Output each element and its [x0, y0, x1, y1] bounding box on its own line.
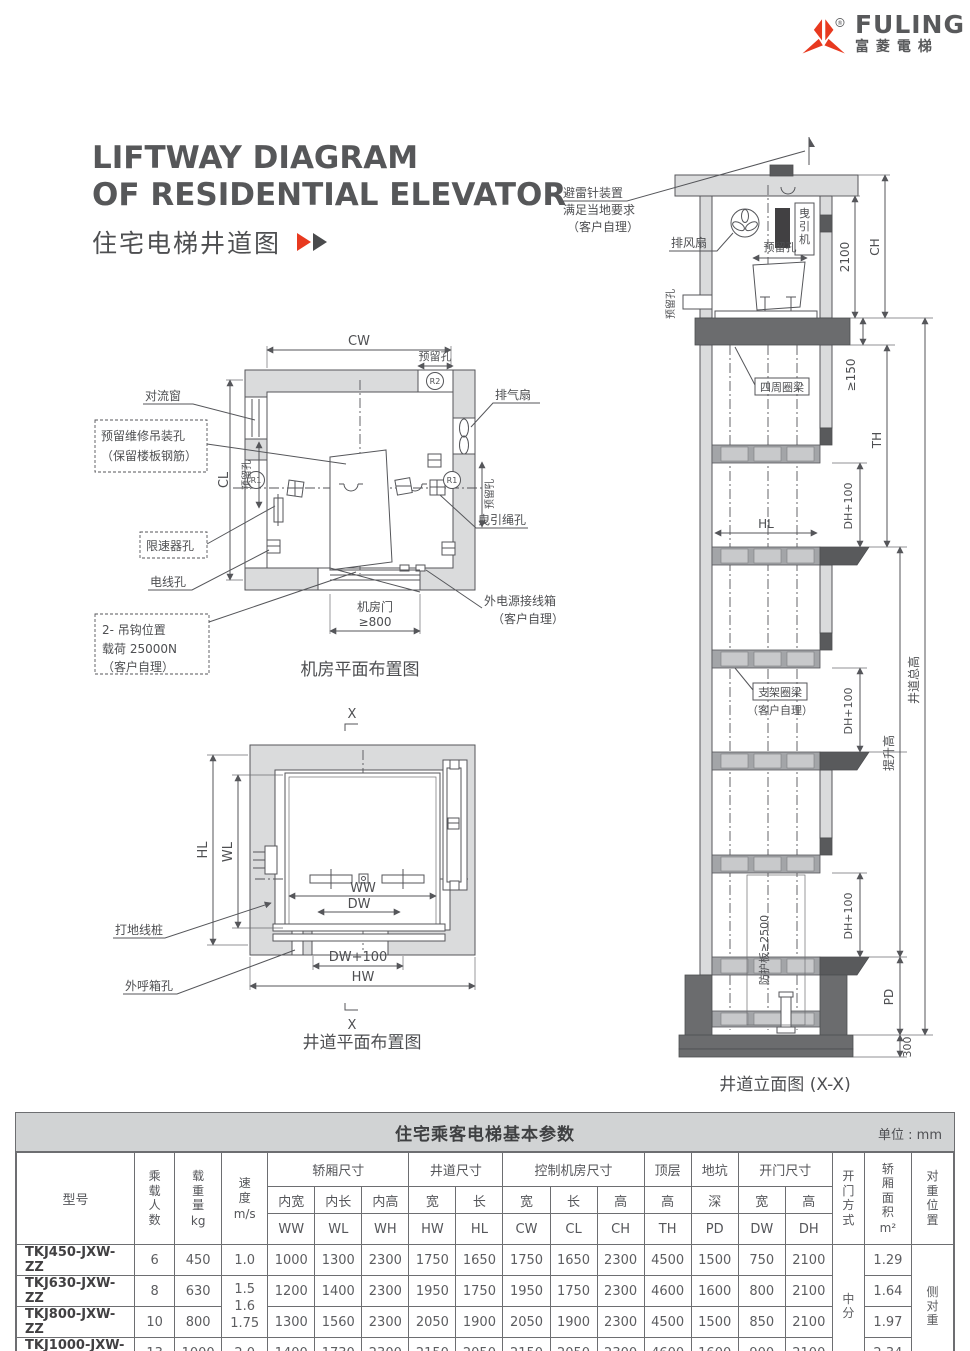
table-title-bar: 住宅乘客电梯基本参数 单位 : mm: [16, 1113, 954, 1152]
sub-hw: 宽: [409, 1187, 456, 1214]
label-rope-hole: 曳引绳孔: [478, 513, 526, 527]
dim-cl: CL: [217, 471, 232, 488]
code-wh: WH: [362, 1214, 409, 1245]
dim-300: 300: [901, 1037, 914, 1058]
cell-cwt-position: 侧对重: [911, 1245, 953, 1351]
arrow-icon: [313, 233, 327, 251]
dim-2100: 2100: [838, 242, 852, 273]
page-title: LIFTWAY DIAGRAM OF RESIDENTIAL ELEVATOR …: [92, 140, 572, 260]
pit-floor: [679, 1035, 853, 1049]
cell-model: TKJ450-JXW-ZZ: [17, 1245, 135, 1276]
machine-room-right-wall: [820, 196, 832, 318]
label-lightning-3: （客户自理）: [567, 219, 639, 234]
group-car-size: 轿厢尺寸: [268, 1153, 409, 1187]
label-ring-beam: 四周圈梁: [760, 380, 804, 394]
dim-th: TH: [870, 432, 884, 449]
section-mark-x-top: X: [348, 707, 357, 722]
sill-bar: [273, 924, 445, 931]
label-convection-window: 对流窗: [145, 389, 181, 403]
label-machine-room-door: 机房门: [357, 599, 393, 614]
dim-hl: HL: [758, 517, 774, 531]
code-hw: HW: [409, 1214, 456, 1245]
dim-dw: DW: [348, 897, 371, 912]
bedplate: [753, 262, 805, 310]
label-guard-plate: 防护板≥2500: [757, 915, 771, 985]
dim-min150: ≥150: [844, 359, 858, 392]
guard-plate-outline: [747, 875, 805, 1025]
sub-wl: 内长: [315, 1187, 362, 1214]
col-car-area: 轿厢面积m²: [864, 1153, 911, 1245]
sub-dh: 高: [785, 1187, 832, 1214]
door-lintel: [820, 633, 832, 650]
group-door-size: 开门尺寸: [738, 1153, 832, 1187]
traction-machine-outline: [330, 450, 392, 570]
dim-door: ≥800: [359, 615, 392, 629]
pit-left-wall: [685, 975, 712, 1037]
label-lightning-1: 避雷针装置: [563, 185, 623, 200]
dim-dw100: DW+100: [329, 950, 388, 965]
table-row: TKJ630-JXW-ZZ 8 630 1.51.61.75 1200 1400…: [17, 1276, 954, 1307]
hoist-hole-note-box: [95, 420, 207, 472]
brand-name: FULING: [855, 12, 965, 38]
page: ® FULING 富菱電梯 LIFTWAY DIAGRAM OF RESIDEN…: [0, 0, 970, 1351]
label-vent-fan: 排风扇: [671, 235, 707, 250]
roof-slab: [675, 175, 858, 196]
machine-floor-slab: [695, 318, 850, 345]
label-governor-hole: 限速器孔: [146, 539, 194, 553]
pit-floor-lip: [679, 1049, 853, 1057]
sub-ww: 内宽: [268, 1187, 315, 1214]
spec-table: 型号 乘载人数 载重量kg 速度m/s 轿厢尺寸 井道尺寸 控制机房尺寸 顶层 …: [16, 1152, 954, 1351]
dim-cw: CW: [348, 334, 370, 349]
liftway-plan-caption: 井道平面布置图: [303, 1033, 422, 1053]
dim-dh2: DH+100: [842, 688, 855, 735]
door-lintel: [820, 428, 832, 445]
sub-pd: 深: [691, 1187, 738, 1214]
col-speed: 速度m/s: [222, 1153, 268, 1245]
table-title: 住宅乘客电梯基本参数: [395, 1120, 575, 1145]
label-hoist-hole-2: （保留楼板钢筋）: [101, 448, 197, 463]
code-dh: DH: [785, 1214, 832, 1245]
vent-fan-icon: [731, 209, 759, 237]
sub-ch: 高: [597, 1187, 644, 1214]
dim-hl: HL: [196, 841, 211, 859]
dim-dh3: DH+100: [842, 893, 855, 940]
elevation-caption: 井道立面图 (X-X): [719, 1075, 850, 1095]
label-hook-1: 2- 吊钩位置: [102, 622, 166, 637]
cell-model: TKJ800-JXW-ZZ: [17, 1307, 135, 1338]
door-unit: [443, 760, 467, 890]
cell-door-type: 中分: [832, 1245, 864, 1351]
label-reserved-hole-top: 预留孔: [764, 241, 797, 254]
dim-ww: WW: [350, 881, 376, 896]
code-cw: CW: [503, 1214, 550, 1245]
shaft-right-wall: [820, 345, 832, 428]
dim-dh1: DH+100: [842, 483, 855, 530]
machine-room-plan-caption: 机房平面布置图: [301, 660, 420, 680]
table-row: TKJ1000-JXW-ZZ 13 1000 2.0 1400 1730 230…: [17, 1338, 954, 1351]
title-line1: LIFTWAY DIAGRAM: [92, 140, 572, 177]
parameter-table: 住宅乘客电梯基本参数 单位 : mm 型号 乘载人数 载重量kg 速度m/s 轿…: [15, 1112, 955, 1351]
fuling-logo-icon: ®: [800, 12, 849, 64]
group-top-floor: 顶层: [644, 1153, 691, 1187]
sub-cl: 长: [550, 1187, 597, 1214]
roof-cap-block: [770, 165, 793, 176]
group-shaft-size: 井道尺寸: [409, 1153, 503, 1187]
label-wire-hole: 电线孔: [150, 575, 186, 589]
cell-model: TKJ630-JXW-ZZ: [17, 1276, 135, 1307]
dim-hw: HW: [352, 970, 375, 985]
label-bracket-beam-1: 支架圈梁: [758, 685, 802, 699]
label-ground-stake: 打地线桩: [115, 922, 163, 937]
registered-mark: ®: [837, 20, 843, 27]
label-power-box-1: 外电源接线箱: [484, 593, 556, 608]
code-hl: HL: [456, 1214, 503, 1245]
table-row: TKJ450-JXW-ZZ 6 450 1.0 1000 1300 2300 1…: [17, 1245, 954, 1276]
liftway-plan: X X HL: [95, 698, 575, 1068]
code-th: TH: [644, 1214, 691, 1245]
title-subtitle: 住宅电梯井道图: [92, 224, 281, 260]
dim-total-height: 井道总高: [906, 656, 921, 704]
shaft-left-wall: [700, 345, 712, 975]
label-bracket-beam-2: （客户自理）: [747, 703, 813, 717]
group-pit: 地坑: [691, 1153, 738, 1187]
sub-th: 高: [644, 1187, 691, 1214]
table-unit: 单位 : mm: [878, 1124, 942, 1143]
col-model: 型号: [17, 1153, 135, 1245]
label-call-box-hole: 外呼箱孔: [125, 978, 173, 993]
label-power-box-2: （客户自理）: [492, 611, 564, 626]
label-reserved-hole-right: 预留孔: [483, 479, 496, 509]
label-hook-2: 载荷 25000N: [102, 642, 177, 656]
door-lintel: [820, 838, 832, 855]
sub-cw: 宽: [503, 1187, 550, 1214]
sub-wh: 内高: [362, 1187, 409, 1214]
sill-bar: [273, 934, 445, 941]
mark-r2: R2: [430, 377, 441, 386]
label-reserved-hole-left: 预留孔: [240, 460, 253, 490]
code-cl: CL: [550, 1214, 597, 1245]
left-duct: [683, 295, 712, 309]
dim-lift-height: 提升高: [881, 735, 896, 771]
dim-ch: CH: [868, 238, 882, 255]
pit-right-wall: [820, 975, 847, 1037]
code-dw: DW: [738, 1214, 785, 1245]
code-ww: WW: [268, 1214, 315, 1245]
cell-speed-merged: 1.51.61.75: [222, 1276, 268, 1338]
label-lightning-2: 满足当地要求: [563, 203, 635, 217]
code-wl: WL: [315, 1214, 362, 1245]
sub-hl: 长: [456, 1187, 503, 1214]
label-hook-3: （客户自理）: [102, 659, 174, 674]
col-cwt-position: 对重位置: [911, 1153, 953, 1245]
code-pd: PD: [691, 1214, 738, 1245]
code-ch: CH: [597, 1214, 644, 1245]
col-persons: 乘载人数: [135, 1153, 175, 1245]
label-reserved-hole-top: 预留孔: [419, 350, 452, 363]
dim-wl: WL: [221, 841, 236, 862]
lightning-rod-icon: [809, 137, 815, 147]
dim-pd: PD: [882, 989, 896, 1005]
group-machine-size: 控制机房尺寸: [503, 1153, 644, 1187]
machine-room-plan: R1 R1 R2 CW 预留孔 CL 预留孔 预留孔 机房门 ≥800 对流窗 …: [88, 322, 588, 690]
col-load: 载重量kg: [175, 1153, 222, 1245]
table-row: TKJ800-JXW-ZZ 10 800 1300 1560 2300 2050…: [17, 1307, 954, 1338]
label-reserved-hole-left: 预留孔: [664, 289, 677, 319]
sub-dw: 宽: [738, 1187, 785, 1214]
cell-model: TKJ1000-JXW-ZZ: [17, 1338, 135, 1351]
elevation-diagram: 避雷针装置 满足当地要求 （客户自理） 排风扇 曳引机 预留孔 预留孔: [555, 135, 970, 1110]
arrow-icon: [297, 233, 311, 251]
mark-r1: R1: [447, 476, 458, 485]
label-traction-machine: 曳引机: [799, 207, 810, 246]
col-door-type: 开门方式: [832, 1153, 864, 1245]
brand-logo: ® FULING 富菱電梯: [800, 12, 965, 64]
brand-name-cn: 富菱電梯: [855, 38, 965, 56]
label-hoist-hole-1: 预留维修吊装孔: [101, 428, 185, 443]
section-mark-x-bottom: X: [348, 1018, 357, 1033]
label-exhaust-fan: 排气扇: [495, 387, 531, 402]
right-wall-block: [820, 215, 832, 232]
title-line2: OF RESIDENTIAL ELEVATOR: [92, 177, 572, 214]
